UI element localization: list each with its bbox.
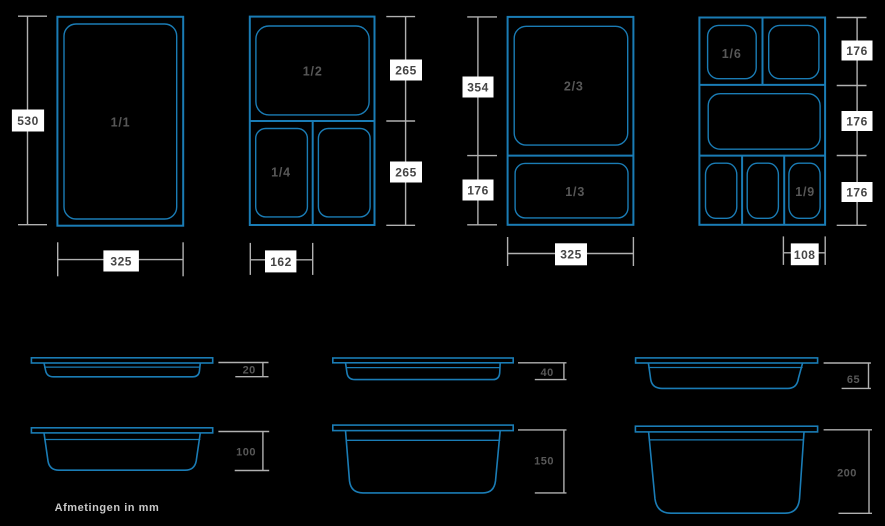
svg-text:176: 176	[467, 184, 489, 198]
svg-text:325: 325	[560, 248, 582, 262]
svg-text:265: 265	[395, 166, 417, 180]
svg-text:162: 162	[270, 255, 292, 269]
svg-text:176: 176	[846, 44, 868, 58]
svg-text:265: 265	[395, 64, 417, 78]
svg-text:150: 150	[534, 455, 554, 467]
svg-text:1/4: 1/4	[271, 165, 291, 179]
svg-text:200: 200	[837, 468, 857, 480]
svg-text:100: 100	[236, 447, 256, 459]
svg-text:1/6: 1/6	[722, 47, 742, 61]
svg-text:Afmetingen in mm: Afmetingen in mm	[55, 502, 160, 514]
svg-text:108: 108	[794, 248, 816, 262]
svg-text:1/2: 1/2	[303, 65, 323, 79]
svg-text:1/1: 1/1	[111, 115, 131, 129]
svg-text:1/9: 1/9	[795, 185, 815, 199]
svg-text:2/3: 2/3	[564, 79, 584, 93]
svg-text:530: 530	[17, 114, 39, 128]
svg-text:176: 176	[846, 115, 868, 129]
svg-text:65: 65	[847, 374, 860, 386]
svg-text:325: 325	[110, 254, 132, 268]
svg-text:20: 20	[243, 365, 256, 377]
svg-text:40: 40	[540, 367, 553, 379]
svg-text:354: 354	[467, 81, 489, 95]
svg-text:1/3: 1/3	[565, 185, 585, 199]
svg-text:176: 176	[846, 186, 868, 200]
